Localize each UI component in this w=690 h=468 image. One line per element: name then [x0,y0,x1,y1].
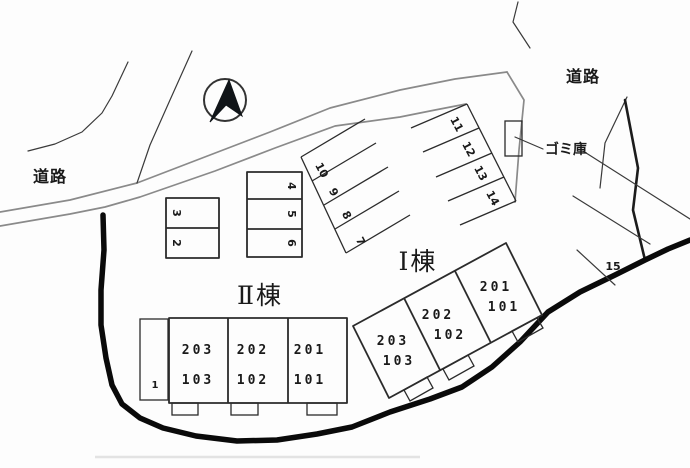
unit-label: 202 [422,308,454,323]
entrance-porch [172,403,198,415]
entrance-porch [307,403,337,415]
unit-label: 202 [237,343,269,358]
east-road-west-edge [600,97,627,188]
site-plan: 3 2 4 5 6 10 9 8 7 11 12 13 14 [0,0,690,468]
parking-space-4-label: 4 [285,182,298,190]
road-bend-line [513,2,530,48]
parking-space-15: 15 [577,250,621,285]
unit-label: 201 [480,280,512,295]
building-2: Ⅱ棟 203 103 202 102 201 101 [169,281,347,415]
main-road [0,72,524,226]
parking-divider [301,119,365,157]
unit-label: 101 [294,373,326,388]
parking-space-2-label: 2 [170,239,183,247]
parking-space-14-label: 14 [483,188,502,208]
site-boundary-line [101,215,690,441]
parking-space-3-label: 3 [170,209,183,217]
road-label-left: 道路 [33,167,67,186]
unit-label: 203 [377,334,409,349]
road-top-right [513,2,690,260]
entrance-porch [443,355,474,380]
parking-space-11-label: 11 [447,114,466,134]
parking-divider [335,191,399,229]
parking-group-4-6: 4 5 6 [247,172,302,257]
parking-divider [460,201,516,225]
site-plan-drawing: 3 2 4 5 6 10 9 8 7 11 12 13 14 [0,0,690,468]
parking-space-7-label: 7 [353,235,368,248]
parking-space-10-label: 10 [312,160,331,180]
garbage-store: ゴミ庫 [505,121,587,158]
parking-space-5-label: 5 [285,210,298,218]
unit-label: 203 [182,343,214,358]
building-2-outline [169,318,347,403]
main-road-lower-edge [0,104,466,226]
building-2-label: Ⅱ棟 [237,281,283,310]
parking-divider [324,167,388,205]
parking-space-13-label: 13 [471,163,490,183]
parking-space-1: 1 [140,319,168,400]
building-1: Ⅰ棟 203 103 202 102 201 101 [353,243,543,401]
garbage-store-label: ゴミ庫 [545,141,587,158]
unit-label: 103 [383,354,415,369]
main-road-upper-edge [0,72,507,212]
branch-road-left-edge [28,62,128,151]
parking-group-7-10: 10 9 8 7 [301,119,410,253]
unit-label: 102 [237,373,269,388]
unit-label: 103 [182,373,214,388]
north-compass [204,79,246,122]
building-1-label: Ⅰ棟 [399,247,438,276]
unit-label: 201 [294,343,326,358]
road-label-top-right: 道路 [566,67,600,86]
southeast-road-lower-edge [573,196,650,244]
north-arrow-icon [210,80,242,122]
parking-group-11-14: 11 12 13 14 [411,104,516,225]
unit-label: 102 [434,328,466,343]
parking-space-1-label: 1 [152,380,159,391]
road-branch-upper-left [28,51,192,183]
branch-road-right-edge [137,51,192,183]
parking-group-2-3: 3 2 [166,198,219,258]
parking-space-15-label: 15 [605,260,620,273]
unit-label: 101 [488,300,520,315]
parking-space-6-label: 6 [285,239,298,247]
entrance-porch [231,403,258,415]
parking-space-12-label: 12 [459,139,478,159]
